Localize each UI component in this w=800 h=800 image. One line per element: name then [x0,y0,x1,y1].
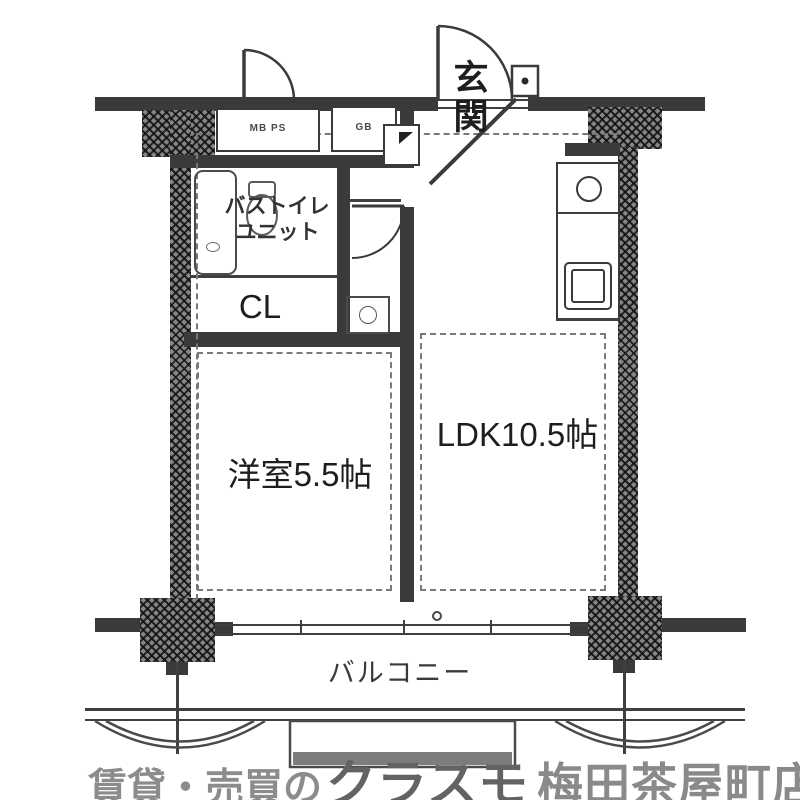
service-door-icon [244,50,294,100]
floorplan-canvas: MB PS GB [0,0,800,800]
bath-unit-label-line1: バストイレ [222,192,332,218]
window-lock-mark [433,612,441,620]
bath-unit-label-line2: ユニット [230,218,325,244]
branding-logo: クラスモ [326,744,529,800]
ldk-label: LDK10.5帖 [425,410,610,454]
branding-watermark: 賃貸・売買の クラスモ 梅田茶屋町店 [88,744,800,800]
closet-label: CL [210,286,310,328]
branding-prefix: 賃貸・売買の [88,757,322,800]
branding-store: 梅田茶屋町店 [537,749,800,800]
intercom-icon [512,66,538,96]
balcony-label: バルコニー [300,652,500,688]
entrance-label: 玄関 [448,52,488,144]
western-room-label: 洋室5.5帖 [210,450,390,494]
washroom-door-icon [352,206,404,258]
